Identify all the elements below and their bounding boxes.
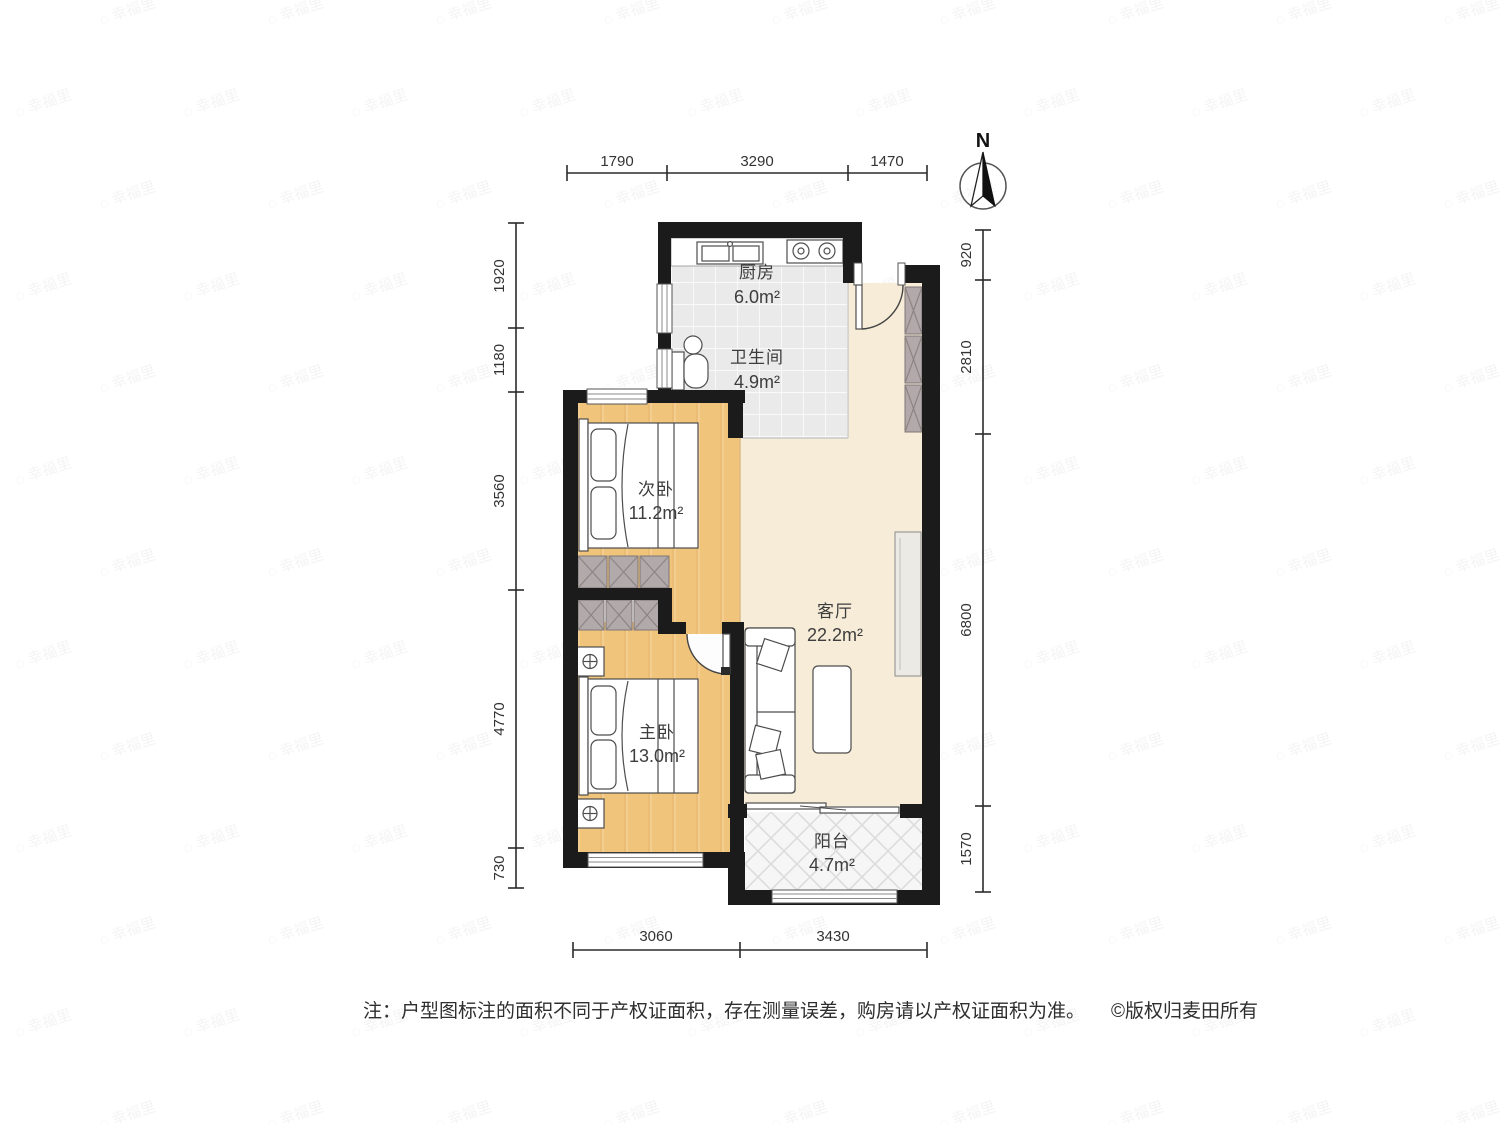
dim-top-3: 1470 xyxy=(870,153,903,170)
sofa-pillow xyxy=(756,750,786,780)
door-hinge xyxy=(721,667,730,675)
wall-secondary-right-stub xyxy=(728,403,743,438)
room-label-secondary-bedroom: 次卧 xyxy=(638,480,674,499)
dim-top-2: 3290 xyxy=(740,153,773,170)
room-area-living-room: 22.2m² xyxy=(807,625,863,645)
room-label-master-bedroom: 主卧 xyxy=(639,723,675,742)
sink-basin-right xyxy=(733,246,759,261)
wardrobe-secondary xyxy=(578,556,669,588)
floorplan-drawing: 厨房 6.0m² 卫生间 4.9m² 次卧 11.2m² 客厅 22.2m² 主… xyxy=(0,0,1500,1125)
stove-burner-right-icon xyxy=(819,243,835,259)
pillow xyxy=(591,686,616,735)
nightstand-bottom xyxy=(576,799,604,828)
room-label-kitchen: 厨房 xyxy=(739,263,775,282)
dim-bottom-2: 3430 xyxy=(816,928,849,945)
dimension-right: 920 2810 6800 1570 xyxy=(958,230,991,892)
room-label-living-room: 客厅 xyxy=(817,602,853,621)
dim-right-4: 1570 xyxy=(958,832,975,865)
kitchen-counter xyxy=(671,238,843,266)
toilet-bowl xyxy=(684,354,708,388)
wall-kitchen-top xyxy=(658,222,862,238)
window-bathroom xyxy=(657,349,672,388)
dimension-bottom: 3060 3430 xyxy=(573,928,927,958)
window-kitchen xyxy=(657,284,672,333)
dimension-left: 1920 1180 3560 4770 730 xyxy=(491,223,524,888)
wall-master-right xyxy=(730,622,744,868)
pillow xyxy=(591,429,616,481)
wall-left xyxy=(563,390,578,868)
entry-cabinet xyxy=(905,287,922,432)
dim-right-2: 2810 xyxy=(958,340,975,373)
dim-top-1: 1790 xyxy=(600,153,633,170)
compass-needle-west xyxy=(971,152,983,206)
room-area-secondary-bedroom: 11.2m² xyxy=(629,503,684,523)
copyright-text: ©版权归麦田所有 xyxy=(1111,1001,1258,1022)
wall-balcony-top-left xyxy=(728,804,747,818)
bath-floor-extension xyxy=(743,392,848,438)
compass-needle-east xyxy=(983,152,995,206)
pillow xyxy=(591,487,616,539)
wall-balcony-top-right xyxy=(900,804,922,818)
window-balcony xyxy=(772,890,897,903)
wall-between-bedrooms xyxy=(563,588,670,600)
wall-right xyxy=(922,265,940,905)
sink-basin-left xyxy=(702,246,729,261)
north-label: N xyxy=(976,130,990,152)
tv-cabinet xyxy=(895,532,921,676)
room-area-kitchen: 6.0m² xyxy=(734,287,780,307)
wall-master-door-left xyxy=(668,622,686,634)
north-compass: N xyxy=(960,130,1006,209)
floorplan-canvas: ⌂ 幸福里⌂ 幸福里⌂ 幸福里⌂ 幸福里⌂ 幸福里⌂ 幸福里⌂ 幸福里⌂ 幸福里… xyxy=(0,0,1500,1125)
dimension-top: 1790 3290 1470 xyxy=(567,153,927,181)
bed-headboard xyxy=(579,677,588,795)
wardrobe-master xyxy=(578,600,660,630)
stove-burner-left-icon xyxy=(793,243,809,259)
room-area-master-bedroom: 13.0m² xyxy=(629,746,685,766)
dim-bottom-1: 3060 xyxy=(639,928,672,945)
room-area-balcony: 4.7m² xyxy=(809,855,855,875)
coffee-table xyxy=(813,666,851,753)
door-jamb xyxy=(898,263,905,285)
dim-left-4: 4770 xyxy=(491,702,508,735)
bedroom-corridor-floor xyxy=(670,600,740,622)
pillow xyxy=(591,740,616,789)
dim-right-1: 920 xyxy=(958,242,975,267)
nightstand-top xyxy=(576,647,604,676)
balcony-floor xyxy=(745,812,922,890)
dim-left-2: 1180 xyxy=(491,344,508,376)
dim-right-3: 6800 xyxy=(958,603,975,636)
footnote: 注：户型图标注的面积不同于产权证面积，存在测量误差，购房请以产权证面积为准。©版… xyxy=(363,996,1258,1023)
dim-left-1: 1920 xyxy=(491,259,508,292)
window-secondary-bedroom xyxy=(587,389,647,404)
room-area-bathroom: 4.9m² xyxy=(734,372,780,392)
room-label-balcony: 阳台 xyxy=(814,832,850,851)
faucet-icon xyxy=(728,242,733,247)
toilet-tank xyxy=(672,352,684,390)
footnote-text: 注：户型图标注的面积不同于产权证面积，存在测量误差，购房请以产权证面积为准。 xyxy=(363,1001,1085,1022)
door-leaf xyxy=(856,285,862,329)
window-master-bedroom xyxy=(588,853,703,867)
dim-left-5: 730 xyxy=(491,855,508,880)
room-label-bathroom: 卫生间 xyxy=(730,348,784,367)
sofa xyxy=(745,628,795,793)
wall-kitchen-left-mid xyxy=(658,333,671,349)
dim-left-3: 3560 xyxy=(491,474,508,507)
bed-headboard xyxy=(579,419,588,551)
wall-kitchen-left-upper xyxy=(658,238,671,284)
door-jamb xyxy=(854,263,862,285)
